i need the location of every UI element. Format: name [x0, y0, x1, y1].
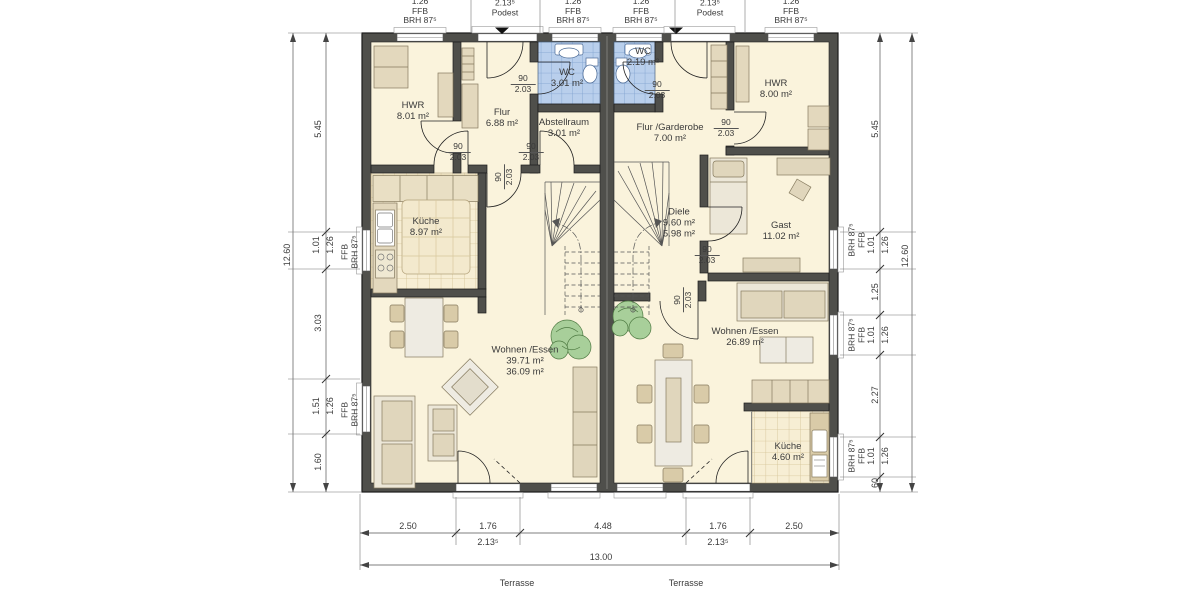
room-label-hwr-left: HWR 8.01 m² [397, 100, 429, 122]
dim-top-1: 1.26 FFB BRH 87⁵ [403, 0, 436, 25]
plan-canvas [0, 0, 1200, 600]
door-size-label: 90 2.03 [494, 165, 514, 190]
dim-left-seg: 1.60 [313, 453, 323, 471]
room-label-kueche-right: Küche 4.60 m² [772, 441, 804, 463]
window-note-line: FFB [857, 223, 867, 256]
door-size-label: 90 2.03 [519, 142, 544, 162]
door-width: 90 [673, 288, 684, 313]
room-name: WC [627, 46, 659, 57]
hwr-right-appliance [808, 106, 829, 127]
door-height: 2.03 [446, 153, 471, 163]
window-note-line: FFB [857, 318, 867, 351]
dim-right-total: 12.60 [900, 245, 910, 268]
dim-left-seg: 5.45 [313, 120, 323, 138]
room-area: 8.97 m² [410, 227, 442, 238]
door-size-label: 90 2.03 [695, 245, 720, 265]
room-label-hwr-right: HWR 8.00 m² [760, 78, 792, 100]
room-label-wc-left: WC 3.01 m² [551, 67, 583, 89]
door-height: 2.03 [511, 85, 536, 95]
dim-note: Podest [697, 8, 723, 18]
dim-top-3: 1.26 FFB BRH 87⁵ [556, 0, 589, 25]
dim-right-seg: 1.01 [866, 236, 876, 254]
room-area: 2.19 m² [627, 57, 659, 68]
window-note: BRH 87⁵ FFB [848, 439, 867, 472]
room-label-diele: Diele 9.60 m² 5.98 m² [663, 207, 695, 240]
door-height: 2.03 [505, 165, 515, 190]
door-width: 90 [494, 165, 505, 190]
window-note-line: BRH 87⁵ [350, 235, 360, 268]
room-label-abstellraum: Abstellraum 3.01 m² [539, 117, 589, 139]
dim-right-seg: 1.01 [866, 326, 876, 344]
dim-bottom-seg: 4.48 [594, 521, 612, 531]
dim-bottom-door: 2.13⁵ [477, 537, 498, 547]
door-height: 2.03 [645, 91, 670, 101]
door-size-label: 90 2.03 [511, 74, 536, 94]
dim-right-seg: 2.27 [870, 386, 880, 404]
room-name: HWR [397, 100, 429, 111]
room-area: 5.98 m² [663, 229, 695, 240]
dim-bottom-seg: 2.50 [399, 521, 417, 531]
hwr-right-appliance [808, 129, 829, 150]
room-area: 11.02 m² [763, 231, 800, 242]
room-area: 39.71 m² [492, 356, 559, 367]
hwr-right-cabinet [736, 46, 749, 102]
room-area: 36.09 m² [492, 367, 559, 378]
room-name: Wohnen /Essen [492, 345, 559, 356]
dim-note: BRH 87⁵ [403, 16, 436, 26]
dim-window-size: 1.26 [880, 447, 890, 465]
dim-left-total: 12.60 [282, 244, 292, 267]
room-area: 4.60 m² [772, 452, 804, 463]
terrace-label-left: Terrasse [500, 578, 535, 588]
terrace-label-right: Terrasse [669, 578, 704, 588]
dim-window-size: 1.26 [325, 397, 335, 415]
door-height: 2.03 [695, 256, 720, 266]
dim-bottom-door: 2.13⁵ [707, 537, 728, 547]
room-name: Küche [410, 216, 442, 227]
room-name: Küche [772, 441, 804, 452]
wardrobe-right [711, 45, 727, 109]
room-area: 8.01 m² [397, 111, 429, 122]
sofa-left [374, 396, 415, 488]
dim-bottom-total: 13.00 [590, 552, 613, 562]
door-width: 90 [695, 245, 720, 256]
dim-left-seg: 1.01 [311, 236, 321, 254]
door-width: 90 [511, 74, 536, 85]
dim-top-4: 1.26 FFB BRH 87⁵ [624, 0, 657, 25]
door-size-label: 90 2.03 [714, 118, 739, 138]
window-note: FFB BRH 87⁵ [341, 393, 360, 426]
door-size-label: 90 2.03 [673, 288, 693, 313]
room-label-gast: Gast 11.02 m² [763, 220, 800, 242]
room-name: Flur /Garderobe [636, 122, 703, 133]
room-area: 6.88 m² [486, 118, 518, 129]
floor-plan: HWR 8.01 m² Flur 6.88 m² WC 3.01 m² Abst… [0, 0, 1200, 600]
right-windows [830, 227, 844, 480]
room-label-wc-right: WC 2.19 m² [627, 46, 659, 68]
desk [777, 158, 830, 175]
bed [710, 158, 747, 234]
door-size-label: 90 2.03 [645, 80, 670, 100]
dim-top-5: 2.13⁵ Podest [697, 0, 723, 18]
room-name: HWR [760, 78, 792, 89]
dim-bottom-seg: 2.50 [785, 521, 803, 531]
room-area: 26.89 m² [712, 337, 779, 348]
dim-left-seg: 3.03 [313, 314, 323, 332]
door-height: 2.03 [714, 129, 739, 139]
dim-window-size: 1.26 [880, 236, 890, 254]
room-area: 9.60 m² [663, 218, 695, 229]
window-note: BRH 87⁵ FFB [848, 223, 867, 256]
room-label-flur-left: Flur 6.88 m² [486, 107, 518, 129]
window-note: FFB BRH 87⁵ [341, 235, 360, 268]
room-area: 8.00 m² [760, 89, 792, 100]
door-width: 90 [714, 118, 739, 129]
armchair-left [428, 405, 457, 461]
door-height: 2.03 [519, 153, 544, 163]
room-label-wohnen-left: Wohnen /Essen 39.71 m² 36.09 m² [492, 345, 559, 378]
room-area: 3.01 m² [539, 128, 589, 139]
room-name: Flur [486, 107, 518, 118]
dim-bottom-seg: 1.76 [479, 521, 497, 531]
room-name: Diele [663, 207, 695, 218]
sideboard-left [573, 367, 597, 477]
dim-window-size: 1.26 [325, 236, 335, 254]
room-area: 7.00 m² [636, 133, 703, 144]
dim-right-seg: 1.25 [870, 283, 880, 301]
dim-left-seg: 1.51 [311, 397, 321, 415]
dim-top-2: 2.13⁵ Podest [492, 0, 518, 18]
dim-window-size: 1.26 [880, 326, 890, 344]
dim-right-seg: 60 [870, 478, 880, 488]
dim-right-seg: 1.01 [866, 447, 876, 465]
dim-bottom-seg: 1.76 [709, 521, 727, 531]
dim-note: Podest [492, 8, 518, 18]
dim-right-seg: 5.45 [870, 120, 880, 138]
dim-note: BRH 87⁵ [556, 16, 589, 26]
room-label-flur-garderobe: Flur /Garderobe 7.00 m² [636, 122, 703, 144]
dim-note: BRH 87⁵ [774, 16, 807, 26]
window-note-line: FFB [857, 439, 867, 472]
room-area: 3.01 m² [551, 78, 583, 89]
window-note: BRH 87⁵ FFB [848, 318, 867, 351]
washer-dryer [374, 46, 408, 88]
door-height: 2.03 [684, 288, 694, 313]
room-name: WC [551, 67, 583, 78]
room-name: Abstellraum [539, 117, 589, 128]
door-width: 90 [519, 142, 544, 153]
hwr-cabinet [438, 73, 453, 117]
window-note-line: BRH 87⁵ [350, 393, 360, 426]
gast-sideboard [743, 258, 800, 272]
room-name: Gast [763, 220, 800, 231]
room-label-kueche-left: Küche 8.97 m² [410, 216, 442, 238]
door-width: 90 [446, 142, 471, 153]
door-width: 90 [645, 80, 670, 91]
door-size-label: 90 2.03 [446, 142, 471, 162]
dim-note: BRH 87⁵ [624, 16, 657, 26]
sofa-right [737, 283, 828, 321]
room-label-wohnen-right: Wohnen /Essen 26.89 m² [712, 326, 779, 348]
dim-top-6: 1.26 FFB BRH 87⁵ [774, 0, 807, 25]
room-name: Wohnen /Essen [712, 326, 779, 337]
